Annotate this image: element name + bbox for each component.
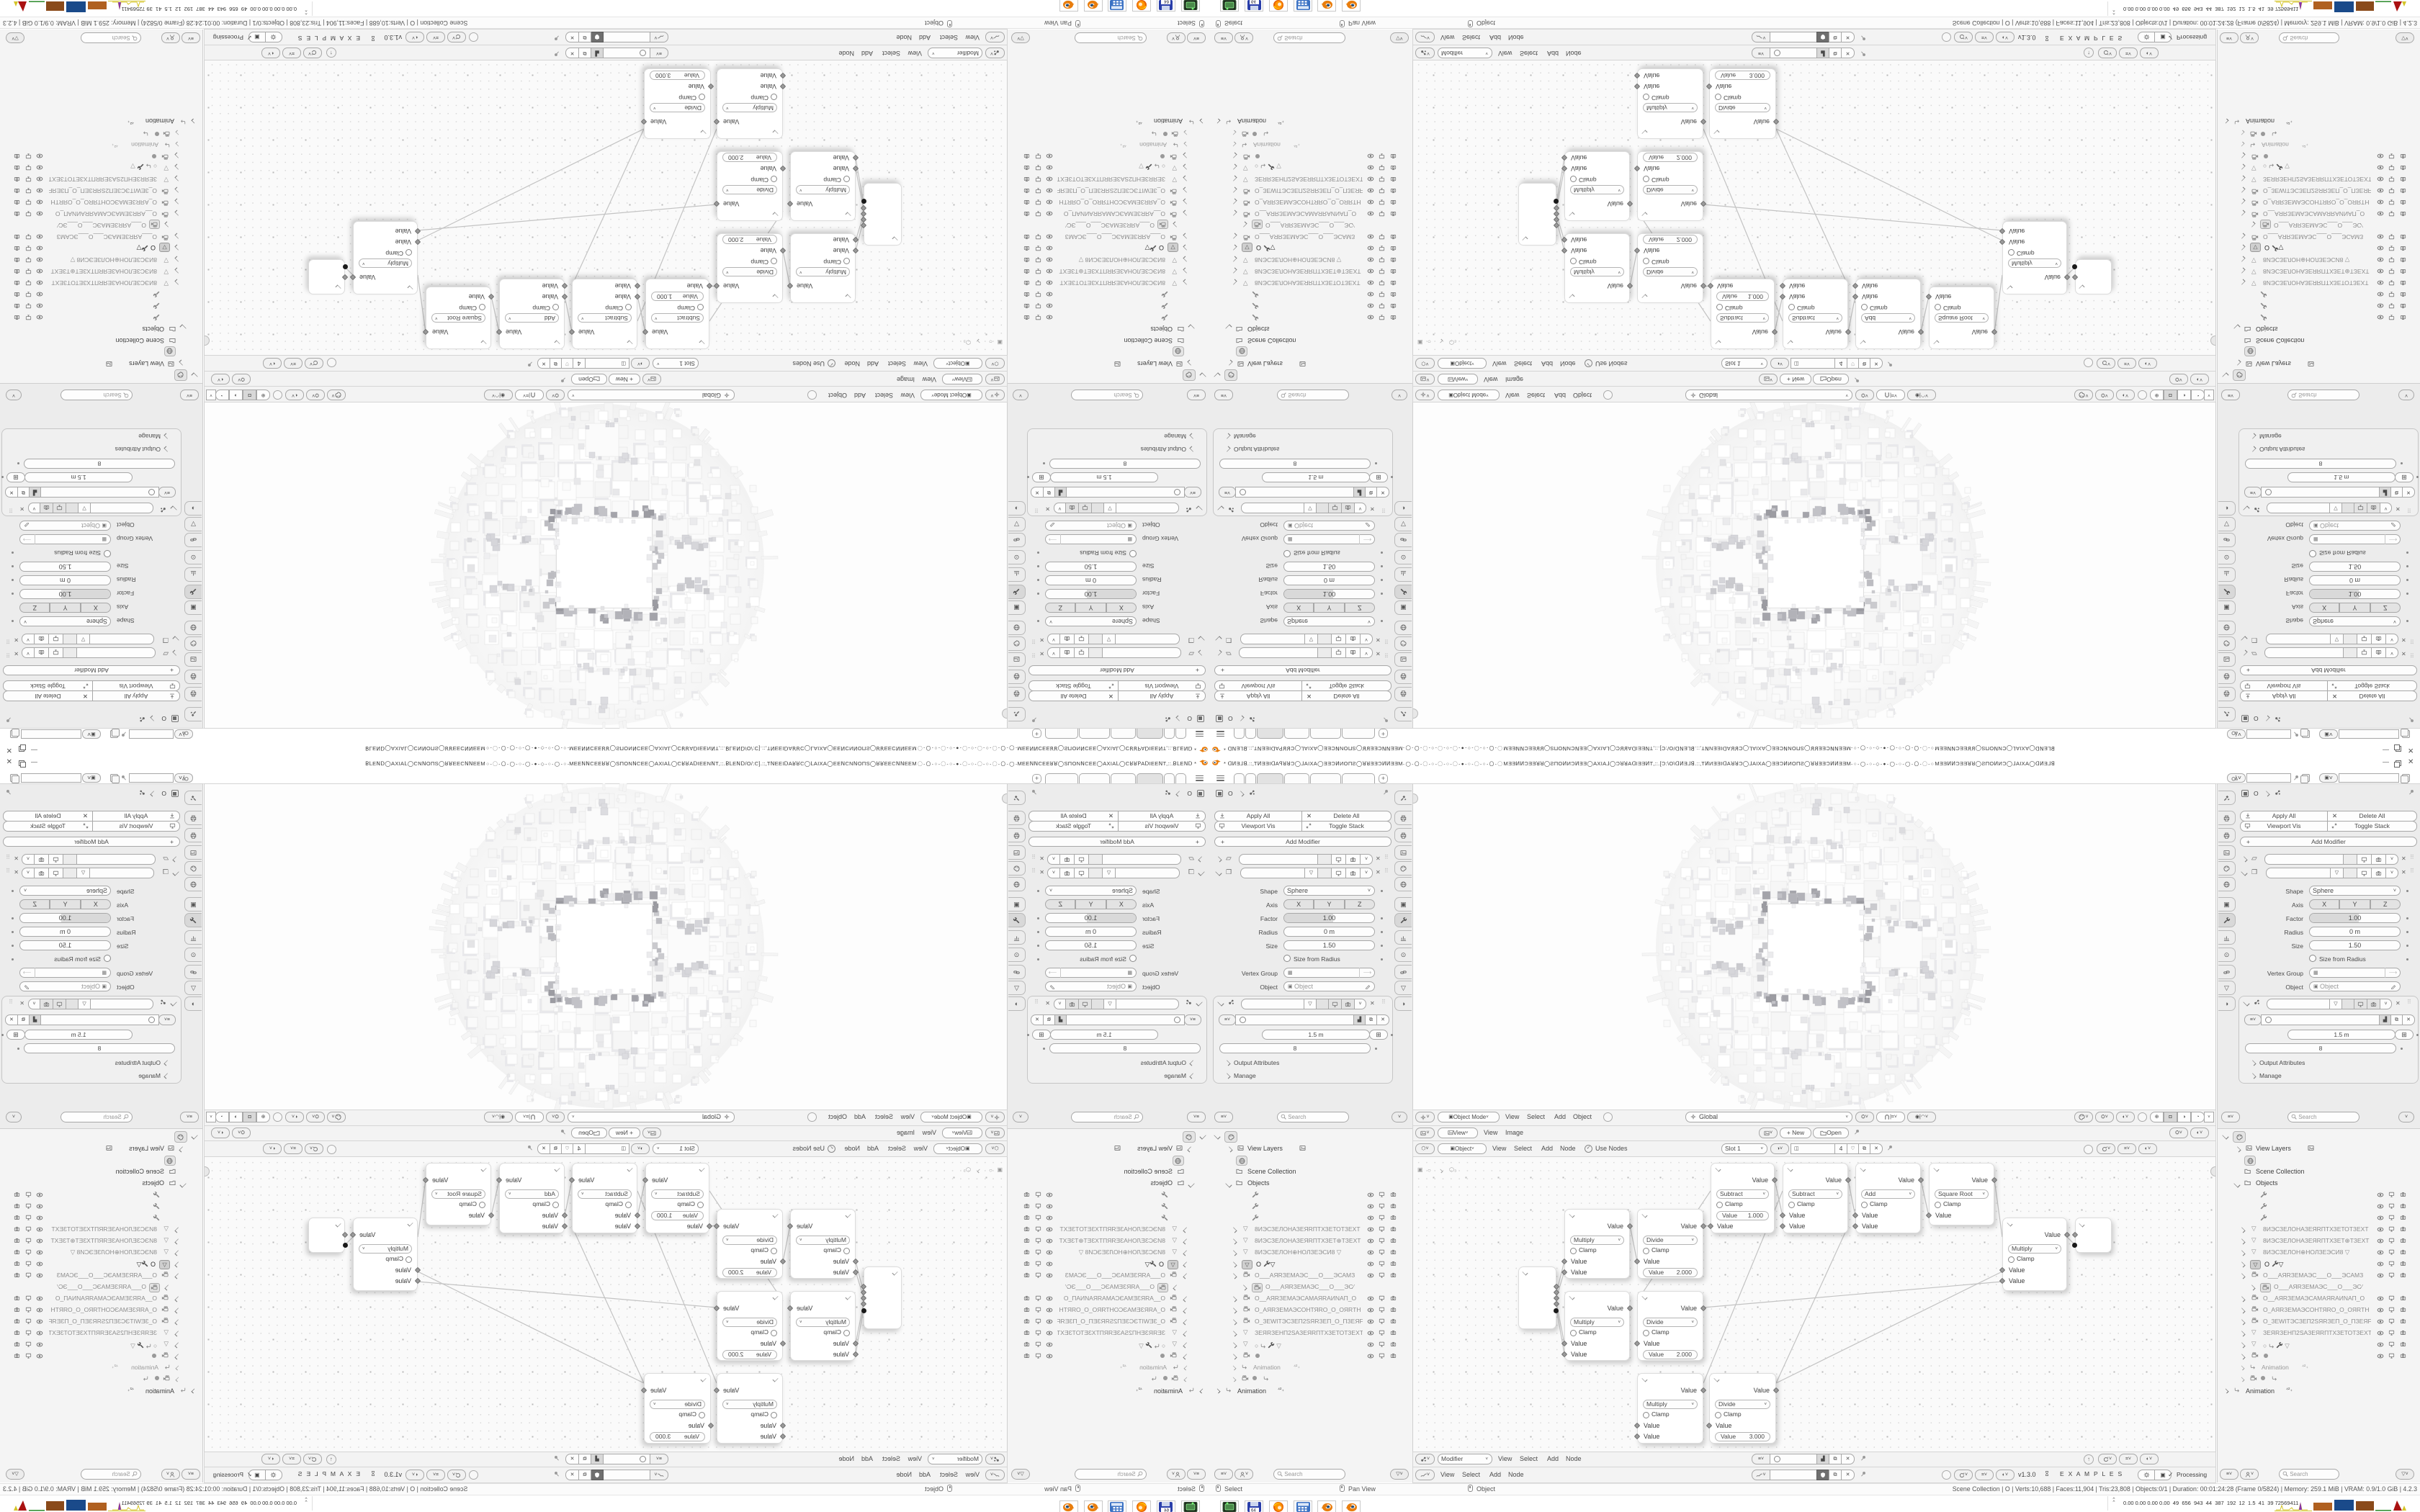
svg-text:64: 64 (1251, 0, 1256, 4)
svg-text:64: 64 (1164, 1509, 1169, 1512)
svg-text:64: 64 (1251, 1509, 1256, 1512)
svg-text:64: 64 (1164, 0, 1169, 4)
